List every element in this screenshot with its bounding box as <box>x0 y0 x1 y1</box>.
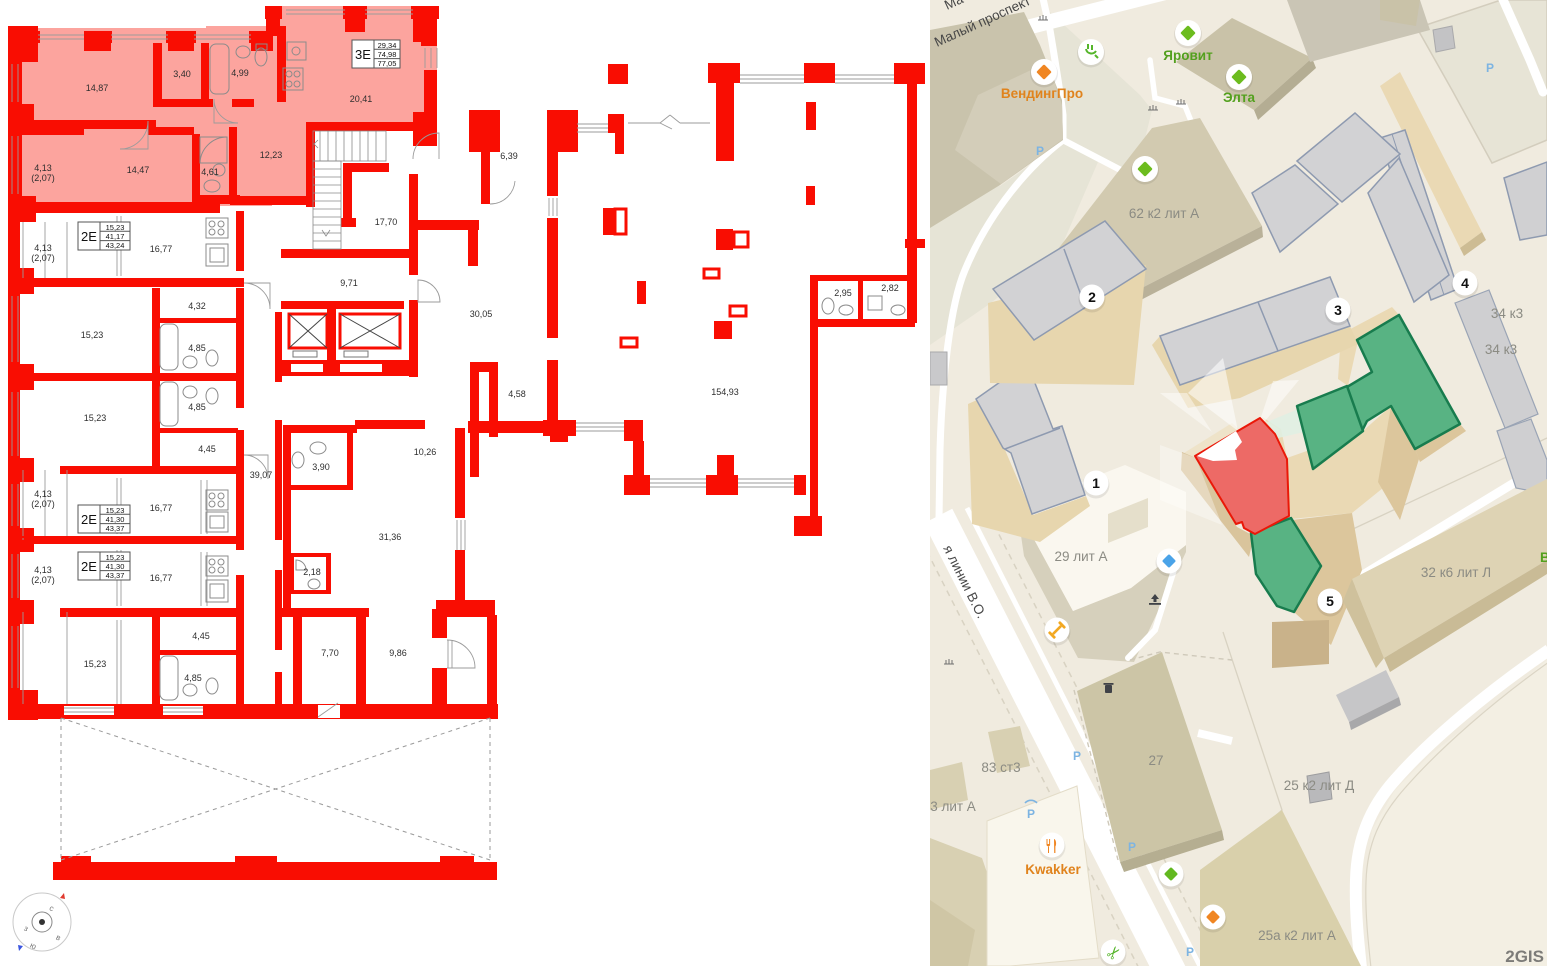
svg-text:74,98: 74,98 <box>378 50 397 59</box>
svg-text:15,23: 15,23 <box>106 553 125 562</box>
svg-text:В: В <box>1540 550 1547 565</box>
svg-text:62 к2 лит А: 62 к2 лит А <box>1129 206 1199 221</box>
svg-text:2Е: 2Е <box>81 229 97 244</box>
svg-text:10,26: 10,26 <box>414 447 437 457</box>
svg-text:20,41: 20,41 <box>350 94 373 104</box>
svg-text:2,95: 2,95 <box>834 288 852 298</box>
svg-text:4: 4 <box>1461 275 1469 291</box>
svg-text:(2,07): (2,07) <box>31 575 55 585</box>
svg-text:2GIS: 2GIS <box>1505 947 1544 966</box>
svg-text:16,77: 16,77 <box>150 244 173 254</box>
svg-text:17,70: 17,70 <box>375 217 398 227</box>
svg-text:2: 2 <box>1088 289 1096 305</box>
svg-text:29,34: 29,34 <box>378 41 397 50</box>
svg-text:4,13: 4,13 <box>34 565 52 575</box>
svg-text:4,13: 4,13 <box>34 489 52 499</box>
svg-text:P: P <box>1036 144 1044 158</box>
svg-text:Kwakker: Kwakker <box>1025 862 1081 877</box>
svg-text:P: P <box>1186 945 1194 959</box>
svg-text:4,32: 4,32 <box>188 301 206 311</box>
svg-text:31,36: 31,36 <box>379 532 402 542</box>
svg-text:32 к6 лит Л: 32 к6 лит Л <box>1421 565 1491 580</box>
svg-text:ВендингПро: ВендингПро <box>1001 86 1083 101</box>
svg-text:41,17: 41,17 <box>106 232 125 241</box>
svg-text:2,18: 2,18 <box>303 567 321 577</box>
svg-text:(2,07): (2,07) <box>31 499 55 509</box>
svg-text:3: 3 <box>1334 302 1342 318</box>
svg-text:25а к2 лит А: 25а к2 лит А <box>1258 928 1336 943</box>
svg-text:15,23: 15,23 <box>84 659 107 669</box>
svg-text:2,82: 2,82 <box>881 283 899 293</box>
svg-text:41,30: 41,30 <box>106 562 125 571</box>
svg-text:15,23: 15,23 <box>106 223 125 232</box>
svg-text:3,90: 3,90 <box>312 462 330 472</box>
svg-text:2Е: 2Е <box>81 559 97 574</box>
svg-text:16,77: 16,77 <box>150 503 173 513</box>
svg-text:34 к3: 34 к3 <box>1485 342 1517 357</box>
svg-text:9,86: 9,86 <box>389 648 407 658</box>
svg-text:4,45: 4,45 <box>198 444 216 454</box>
svg-text:(2,07): (2,07) <box>31 253 55 263</box>
svg-text:83 ст3: 83 ст3 <box>981 760 1020 775</box>
svg-text:P: P <box>1128 840 1136 854</box>
svg-text:P: P <box>1073 749 1081 763</box>
svg-text:12,23: 12,23 <box>260 150 283 160</box>
svg-text:154,93: 154,93 <box>711 387 739 397</box>
svg-text:P: P <box>1027 807 1035 821</box>
svg-text:2Е: 2Е <box>81 512 97 527</box>
svg-text:4,99: 4,99 <box>231 68 249 78</box>
svg-text:5: 5 <box>1326 593 1334 609</box>
svg-text:4,85: 4,85 <box>184 673 202 683</box>
svg-text:29 лит А: 29 лит А <box>1054 549 1107 564</box>
svg-text:4,45: 4,45 <box>192 631 210 641</box>
svg-text:7,70: 7,70 <box>321 648 339 658</box>
svg-text:4,85: 4,85 <box>188 343 206 353</box>
svg-text:34 к3: 34 к3 <box>1491 306 1523 321</box>
svg-text:27: 27 <box>1148 753 1163 768</box>
svg-text:43,24: 43,24 <box>106 241 125 250</box>
svg-text:30,05: 30,05 <box>470 309 493 319</box>
svg-text:4,58: 4,58 <box>508 389 526 399</box>
svg-text:77,05: 77,05 <box>378 59 397 68</box>
svg-text:25 к2 лит Д: 25 к2 лит Д <box>1284 778 1354 793</box>
svg-text:Элта: Элта <box>1223 90 1255 105</box>
svg-text:15,23: 15,23 <box>106 506 125 515</box>
svg-text:6,39: 6,39 <box>500 151 518 161</box>
svg-text:41,30: 41,30 <box>106 515 125 524</box>
svg-text:39,07: 39,07 <box>250 470 273 480</box>
svg-text:15,23: 15,23 <box>81 330 104 340</box>
svg-text:43,37: 43,37 <box>106 524 125 533</box>
svg-text:1: 1 <box>1092 475 1100 491</box>
svg-text:9,71: 9,71 <box>340 278 358 288</box>
svg-text:P: P <box>1486 61 1494 75</box>
svg-text:3,40: 3,40 <box>173 69 191 79</box>
svg-text:3Е: 3Е <box>355 47 371 62</box>
svg-text:3 лит А: 3 лит А <box>930 799 976 814</box>
svg-text:43,37: 43,37 <box>106 571 125 580</box>
svg-text:14,47: 14,47 <box>127 165 150 175</box>
svg-text:4,13: 4,13 <box>34 243 52 253</box>
svg-text:4,61: 4,61 <box>201 167 219 177</box>
svg-text:Яровит: Яровит <box>1163 48 1213 63</box>
svg-text:4,13: 4,13 <box>34 163 52 173</box>
svg-text:14,87: 14,87 <box>86 83 109 93</box>
svg-text:(2,07): (2,07) <box>31 173 55 183</box>
svg-text:16,77: 16,77 <box>150 573 173 583</box>
svg-text:15,23: 15,23 <box>84 413 107 423</box>
svg-text:4,85: 4,85 <box>188 402 206 412</box>
